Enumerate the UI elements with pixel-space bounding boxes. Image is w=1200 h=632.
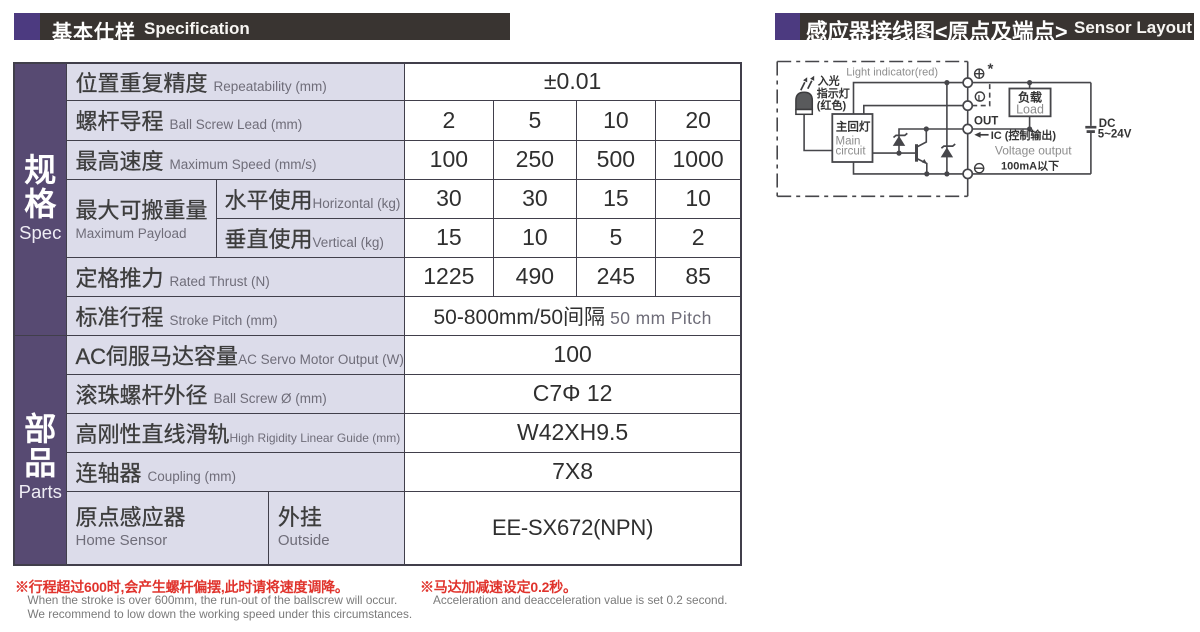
svg-text:IC (控制输出): IC (控制输出) — [991, 128, 1057, 142]
svg-text:circuit: circuit — [836, 146, 867, 158]
svg-text:指示灯: 指示灯 — [817, 86, 850, 100]
svg-text:L: L — [978, 93, 983, 103]
svg-text:Light indicator(red): Light indicator(red) — [846, 67, 938, 79]
svg-text:入光: 入光 — [818, 74, 840, 88]
svg-text:*: * — [988, 61, 994, 78]
svg-text:(红色): (红色) — [817, 98, 847, 112]
svg-text:OUT: OUT — [974, 115, 998, 127]
svg-text:主回灯: 主回灯 — [836, 120, 871, 134]
svg-text:5~24V: 5~24V — [1098, 129, 1132, 141]
svg-text:Load: Load — [1016, 103, 1044, 117]
svg-text:Voltage output: Voltage output — [995, 144, 1072, 158]
svg-text:100mA以下: 100mA以下 — [1001, 160, 1059, 173]
